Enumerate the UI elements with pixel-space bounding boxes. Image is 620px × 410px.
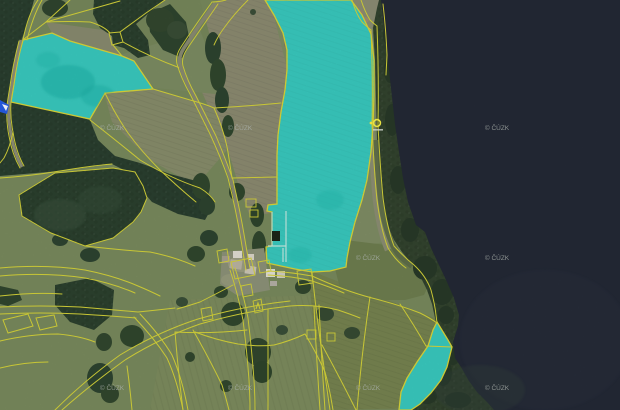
svg-text:© ČÚZK: © ČÚZK	[100, 123, 125, 132]
svg-text:© ČÚZK: © ČÚZK	[485, 383, 510, 392]
svg-text:© ČÚZK: © ČÚZK	[485, 123, 510, 132]
svg-text:© ČÚZK: © ČÚZK	[100, 383, 125, 392]
svg-text:© ČÚZK: © ČÚZK	[356, 383, 381, 392]
svg-text:© ČÚZK: © ČÚZK	[228, 383, 253, 392]
svg-text:© ČÚZK: © ČÚZK	[485, 253, 510, 262]
svg-text:© ČÚZK: © ČÚZK	[356, 253, 381, 262]
svg-text:© ČÚZK: © ČÚZK	[228, 123, 253, 132]
